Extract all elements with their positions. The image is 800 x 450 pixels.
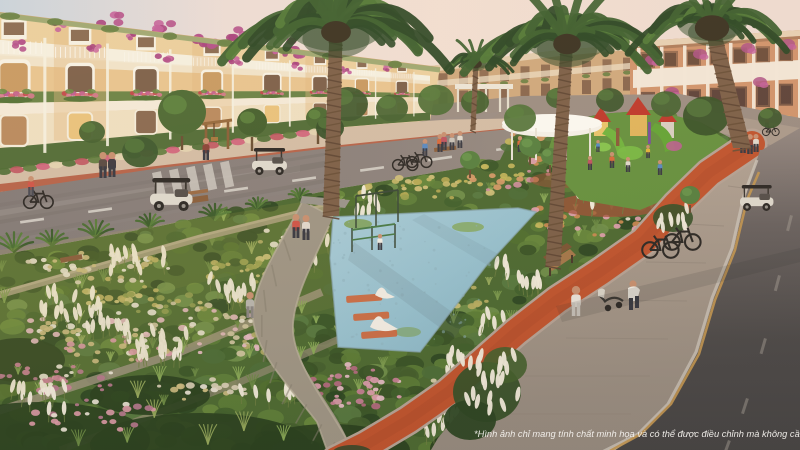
svg-text:*Hình ảnh chỉ mang tính chất m: *Hình ảnh chỉ mang tính chất minh họa và… — [474, 429, 800, 439]
